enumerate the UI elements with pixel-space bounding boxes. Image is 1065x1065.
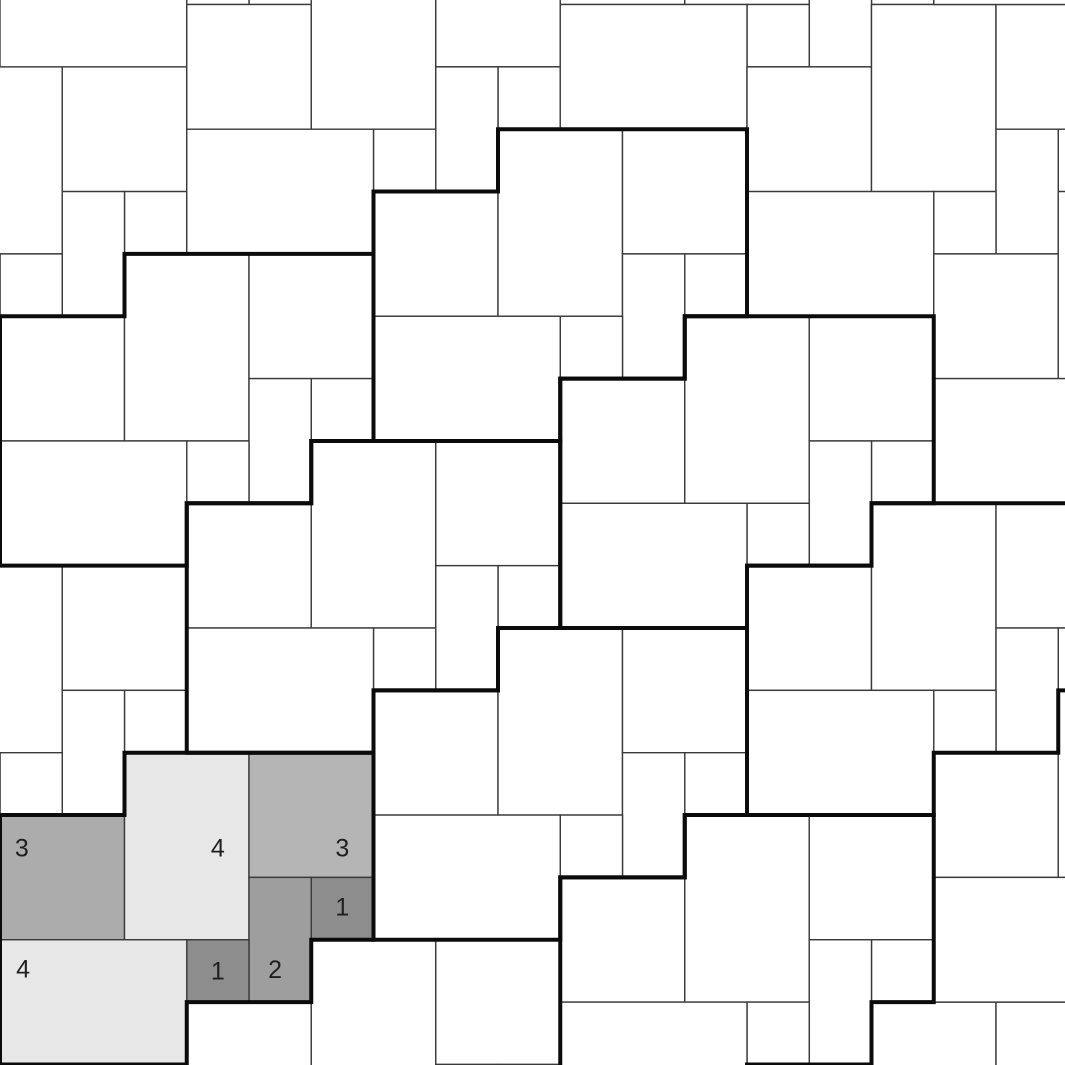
- tile-rect: [0, 0, 187, 67]
- tile-rect: [623, 129, 748, 254]
- tile-rect: [996, 5, 1065, 130]
- tile-rect: [498, 566, 560, 628]
- tile-rect: [0, 441, 187, 566]
- tile-rect: [187, 5, 312, 130]
- tile-rect: [747, 5, 809, 67]
- tile-rect: [996, 503, 1065, 628]
- tile-rect: [0, 566, 62, 753]
- tile-rect: [809, 316, 934, 441]
- tile-rect: [1058, 129, 1065, 191]
- tile-rect: [685, 254, 747, 316]
- tile-rect: [560, 1002, 747, 1065]
- tile-rect: [311, 441, 436, 628]
- tile-rect: [374, 192, 499, 317]
- tiling-diagram: 3431214: [0, 0, 1065, 1065]
- tile-size-label: 3: [335, 834, 349, 862]
- tile-rect: [872, 1002, 997, 1065]
- tile-rect: [62, 690, 124, 815]
- tile-rect: [872, 5, 997, 192]
- tile-rect: [747, 67, 872, 192]
- tile-rect: [747, 1002, 809, 1064]
- tile-rect: [560, 316, 622, 378]
- tile-rect: [125, 690, 187, 752]
- tile-rect: [311, 940, 436, 1065]
- tile-rect: [934, 753, 1059, 878]
- tile-rect: [1058, 628, 1065, 690]
- tile-rect: [934, 192, 996, 254]
- tile-rect: [560, 877, 685, 1002]
- tile-rect: [996, 628, 1058, 753]
- tile-rect: [498, 628, 623, 815]
- tile-rect: [560, 5, 747, 130]
- tile-rect: [623, 254, 685, 379]
- tile-size-label: 4: [211, 834, 225, 862]
- tile-rect: [685, 316, 810, 503]
- tile-rect: [436, 67, 498, 192]
- tile-rect: [809, 815, 934, 940]
- tile-rect: [0, 254, 62, 316]
- rectangle-cluster-tiling: 3431214: [0, 0, 1065, 1065]
- tile-rect: [560, 379, 685, 504]
- tile-rect: [498, 129, 623, 316]
- tile-rect: [872, 940, 934, 1002]
- tile-rect: [872, 503, 997, 690]
- tile-rect: [747, 192, 934, 317]
- tile-rect: [685, 815, 810, 1002]
- tile-rect: [311, 0, 436, 129]
- tile-rect: [187, 628, 374, 753]
- tile-rect: [934, 254, 1059, 379]
- tile-rect: [747, 566, 872, 691]
- tile-rect: [187, 1002, 312, 1065]
- tile-rect: [62, 67, 187, 192]
- tile-rect: [934, 877, 1065, 1002]
- tile-rect: [623, 753, 685, 878]
- tile-rect: [374, 129, 436, 191]
- tile-rect: [1058, 192, 1065, 379]
- tile-rect: [934, 0, 1065, 5]
- tile-rect: [436, 0, 561, 67]
- tile-rect: [934, 690, 996, 752]
- tile-rect: [809, 0, 871, 67]
- tile-rect: [996, 1002, 1065, 1065]
- tile-rect: [374, 628, 436, 690]
- tile-rect: [747, 690, 934, 815]
- tile-size-label: 2: [268, 956, 282, 984]
- tile-rect: [62, 192, 124, 317]
- tile-rect: [125, 254, 250, 441]
- tile-rect: [685, 753, 747, 815]
- tile-rect: [311, 379, 373, 441]
- tile-rect: [623, 628, 748, 753]
- tile-rect: [249, 379, 311, 504]
- tile-rect: [187, 129, 374, 254]
- tile-rect: [560, 815, 622, 877]
- tile-rect: [374, 815, 561, 940]
- tile-rect: [187, 441, 249, 503]
- tile-rect: [125, 192, 187, 254]
- tile-rect: [374, 690, 499, 815]
- tile-rect: [374, 316, 561, 441]
- tile-rect: [0, 316, 125, 441]
- tile-size-label: 1: [335, 894, 349, 922]
- tile-rect: [436, 566, 498, 691]
- tile-rect: [62, 566, 187, 691]
- tile-size-label: 3: [15, 834, 29, 862]
- tile-rect: [747, 503, 809, 565]
- tile-rect: [125, 753, 250, 940]
- tile-rect: [872, 441, 934, 503]
- tile-rect: [436, 441, 561, 566]
- tile-rect: [498, 67, 560, 129]
- tile-size-label: 4: [16, 955, 30, 983]
- tile-size-label: 1: [211, 957, 225, 985]
- tile-rect: [934, 379, 1065, 504]
- tile-rect: [809, 441, 871, 566]
- tile-rect: [996, 129, 1058, 254]
- tile-rect: [249, 254, 374, 379]
- tile-rect: [436, 940, 561, 1065]
- tile-rect: [0, 753, 62, 815]
- tile-rect: [0, 67, 62, 254]
- tile-rect: [187, 503, 312, 628]
- tile-rect: [560, 503, 747, 628]
- tile-rect: [809, 940, 871, 1065]
- tile-rect: [249, 753, 374, 878]
